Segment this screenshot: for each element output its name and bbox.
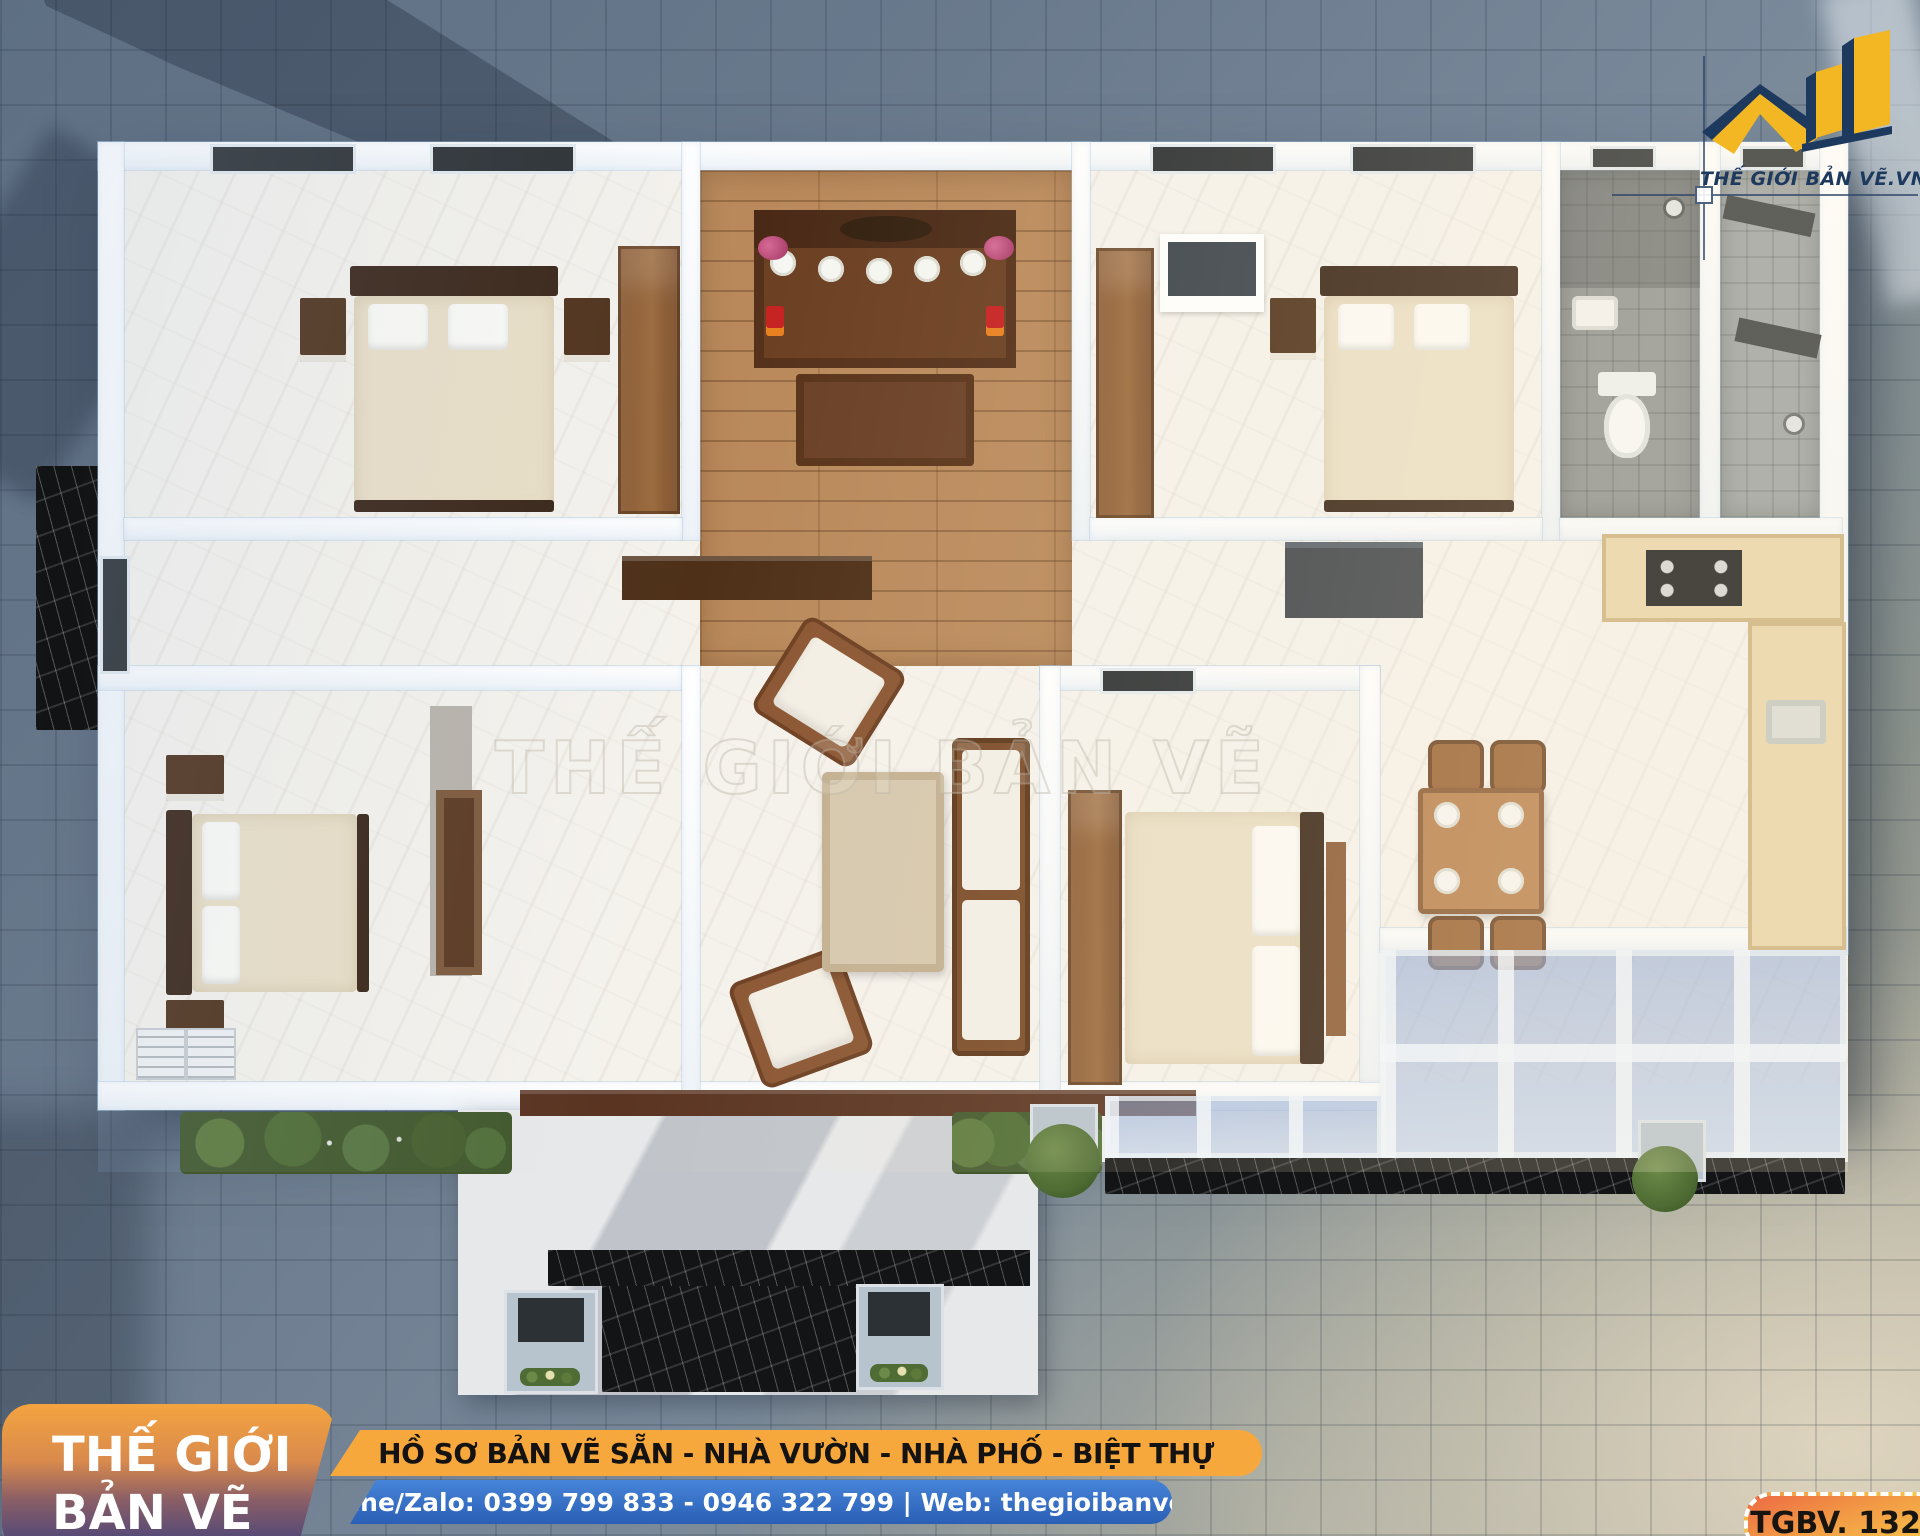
window-bedroom1-a <box>210 144 356 174</box>
entry-planter-right <box>856 1284 944 1390</box>
bed3-pillow <box>202 822 240 900</box>
brand-badge-line2: BẢN VẼ <box>52 1484 291 1536</box>
bedroom2-wardrobe <box>1096 248 1154 518</box>
wall-bedroom4-dining <box>1360 666 1380 1082</box>
living-tv-console <box>622 556 872 600</box>
bed1-foot-bench <box>354 500 554 512</box>
bed4-headboard <box>1300 812 1324 1064</box>
altar-offering-plate <box>866 258 892 284</box>
services-banner-text: HỒ SƠ BẢN VẼ SẴN - NHÀ VƯỜN - NHÀ PHỐ - … <box>378 1437 1214 1470</box>
wall-bedroom1-altar <box>682 142 700 540</box>
bed4-pillow <box>1252 826 1300 936</box>
entry-planter-left <box>504 1290 598 1394</box>
bed3-nightstand-top <box>166 755 224 801</box>
bedroom3-tv-frame <box>436 790 482 975</box>
bed1-headboard <box>350 266 558 296</box>
bed1-nightstand-right <box>564 298 610 362</box>
hedge-strip-left <box>180 1112 512 1174</box>
wall-altar-bedroom2 <box>1072 142 1090 540</box>
corner-shadow <box>0 1110 150 1450</box>
window-hall-left <box>100 556 130 674</box>
bedroom2-tv <box>1168 242 1256 296</box>
bed2-pillow <box>1338 304 1394 350</box>
wall-bedroom4-north <box>1040 666 1380 690</box>
bed3-foot-bench <box>357 814 369 992</box>
window-bedroom2-a <box>1150 144 1276 174</box>
altar-medallion <box>840 216 932 242</box>
shower-head-icon <box>1666 200 1682 216</box>
bed2-foot-bench <box>1324 500 1514 512</box>
utility-unit <box>186 1028 236 1080</box>
bed1-nightstand-left <box>300 298 346 362</box>
dining-chair <box>1490 740 1546 794</box>
toilet-bowl <box>1604 394 1650 458</box>
bed3-pillow <box>202 906 240 984</box>
altar-offering-plate <box>818 256 844 282</box>
contact-banner: Hotline/Zalo: 0399 799 833 - 0946 322 79… <box>350 1480 1172 1524</box>
toilet-tank <box>1598 372 1656 396</box>
bed4-pillow <box>1252 946 1300 1056</box>
floor-plan-render: THẾ GIỚI BẢN VẼ THẾ GIỚI BẢN VẼ.VN THẾ G… <box>0 0 1920 1536</box>
carport-marble-strip <box>1105 1158 1845 1194</box>
window-bedroom4 <box>1100 668 1196 694</box>
watermark-text: THẾ GIỚI BẢN VẼ <box>495 726 1270 810</box>
bush <box>1026 1124 1100 1198</box>
dining-plate <box>1434 868 1460 894</box>
wall-bedroom3-north <box>98 666 682 690</box>
window-bedroom2-b <box>1350 144 1476 174</box>
altar-flowers-right <box>984 236 1014 260</box>
bed3-headboard <box>166 810 192 995</box>
altar-offering-plate <box>960 250 986 276</box>
brand-badge-text: THẾ GIỚI BẢN VẼ <box>52 1426 291 1536</box>
bed1-pillow <box>448 304 508 350</box>
shower-head-icon <box>1786 416 1802 432</box>
wall-bedroom1-south <box>124 518 682 540</box>
kitchen-sink <box>1766 700 1826 744</box>
kitchen-counter-right-arm <box>1748 622 1846 950</box>
dining-plate <box>1434 802 1460 828</box>
dining-plate <box>1498 868 1524 894</box>
dining-plate <box>1498 802 1524 828</box>
logo-brand-text: THẾ GIỚI BẢN VẼ.VN <box>1700 168 1912 190</box>
kitchen-dark-cabinet <box>1285 542 1423 618</box>
altar-bench <box>796 374 974 466</box>
marble-feature-wall <box>36 466 98 730</box>
altar-flowers-left <box>758 236 788 260</box>
sofa-cushion <box>962 900 1020 1040</box>
dining-chair <box>1428 740 1484 794</box>
bath1-shower-area <box>1560 170 1700 288</box>
services-banner: HỒ SƠ BẢN VẼ SẴN - NHÀ VƯỜN - NHÀ PHỐ - … <box>330 1430 1262 1476</box>
bed2-headboard <box>1320 266 1518 296</box>
bed2-nightstand <box>1270 298 1316 360</box>
bed4-bench <box>1326 842 1346 1036</box>
bath1-sink <box>1572 296 1618 330</box>
bed2-pillow <box>1414 304 1470 350</box>
wall-exterior-top <box>98 142 1848 170</box>
logo-buildings-icon <box>1702 28 1908 168</box>
design-code-text: TGBV. 1321 <box>1750 1506 1920 1536</box>
planter-top <box>868 1292 930 1336</box>
pergola-beam-horizontal <box>1380 1044 1846 1062</box>
bedroom4-wardrobe <box>1068 790 1122 1085</box>
planter-top <box>518 1298 584 1342</box>
altar-offering-plate <box>914 256 940 282</box>
crosshair-horizontal-line <box>1612 194 1918 196</box>
entry-marble-pad <box>602 1286 856 1392</box>
bush <box>1632 1146 1698 1212</box>
cooktop <box>1646 550 1742 606</box>
bedroom1-wardrobe <box>618 246 680 514</box>
bed1-pillow <box>368 304 428 350</box>
brand-badge: THẾ GIỚI BẢN VẼ <box>2 1404 336 1536</box>
design-code-badge: TGBV. 1321 <box>1744 1492 1920 1536</box>
wall-bedroom2-south <box>1090 518 1542 540</box>
brand-badge-line1: THẾ GIỚI <box>52 1426 291 1484</box>
altar-candle-left <box>766 306 784 336</box>
planter-flowers <box>870 1364 928 1382</box>
wall-bedroom2-bath1 <box>1542 142 1560 540</box>
entry-marble-band <box>548 1250 1030 1286</box>
altar-candle-right <box>986 306 1004 336</box>
window-bedroom1-b <box>430 144 576 174</box>
utility-unit <box>136 1028 186 1080</box>
contact-banner-text: Hotline/Zalo: 0399 799 833 - 0946 322 79… <box>293 1488 1229 1517</box>
glass-pergola-front <box>1105 1096 1382 1158</box>
planter-flowers <box>520 1368 580 1386</box>
window-bath1 <box>1590 146 1656 170</box>
